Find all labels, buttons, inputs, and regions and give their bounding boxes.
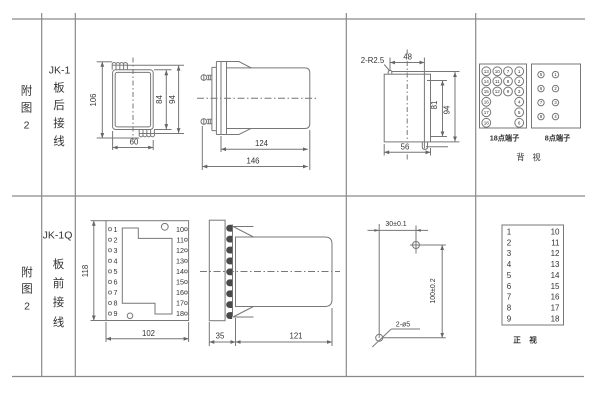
svg-text:图: 图: [21, 102, 33, 115]
svg-text:8: 8: [507, 303, 512, 312]
svg-text:2: 2: [507, 238, 512, 247]
svg-text:板: 板: [53, 257, 65, 271]
svg-text:18: 18: [176, 309, 184, 318]
svg-text:13: 13: [176, 256, 184, 265]
svg-text:后: 后: [53, 99, 65, 112]
svg-text:视: 视: [529, 335, 537, 345]
svg-text:13: 13: [484, 69, 490, 74]
svg-text:1: 1: [114, 225, 118, 234]
svg-text:背: 背: [516, 152, 524, 162]
svg-text:60: 60: [130, 138, 139, 147]
svg-text:JK-1Q: JK-1Q: [43, 230, 73, 242]
svg-text:正: 正: [513, 336, 521, 345]
svg-text:9: 9: [507, 89, 510, 94]
svg-text:图: 图: [21, 282, 33, 295]
svg-text:接: 接: [53, 296, 65, 309]
svg-text:板: 板: [53, 81, 65, 95]
svg-text:35: 35: [216, 332, 225, 341]
svg-text:1: 1: [554, 72, 557, 77]
svg-text:18点端子: 18点端子: [490, 133, 520, 142]
svg-text:81: 81: [430, 101, 439, 110]
svg-text:附: 附: [21, 265, 33, 279]
svg-text:11: 11: [495, 79, 500, 84]
svg-text:10: 10: [176, 225, 184, 234]
svg-text:3: 3: [114, 246, 118, 255]
svg-text:3: 3: [507, 249, 512, 258]
svg-text:1: 1: [518, 69, 521, 74]
svg-text:84: 84: [155, 95, 164, 104]
svg-text:2: 2: [554, 86, 557, 91]
svg-text:5: 5: [518, 110, 521, 115]
svg-text:前: 前: [53, 276, 65, 290]
svg-text:2: 2: [114, 235, 118, 244]
svg-text:15: 15: [176, 278, 184, 287]
svg-text:146: 146: [246, 157, 259, 166]
svg-text:3: 3: [554, 100, 557, 105]
svg-text:30±0.1: 30±0.1: [385, 221, 406, 228]
svg-text:视: 视: [532, 153, 540, 163]
svg-text:2-ø5: 2-ø5: [396, 322, 411, 329]
svg-text:附: 附: [21, 84, 33, 98]
svg-text:2-R2.5: 2-R2.5: [361, 56, 385, 65]
svg-text:2: 2: [518, 79, 521, 84]
svg-text:2: 2: [24, 300, 30, 312]
svg-text:9: 9: [114, 309, 118, 318]
svg-text:11: 11: [551, 238, 560, 247]
svg-text:12: 12: [495, 89, 501, 94]
svg-text:7: 7: [507, 69, 510, 74]
svg-text:4: 4: [114, 256, 118, 265]
svg-text:94: 94: [442, 105, 451, 114]
svg-text:线: 线: [53, 315, 65, 329]
svg-text:6: 6: [114, 278, 118, 287]
svg-text:12: 12: [551, 249, 560, 258]
svg-text:15: 15: [551, 282, 560, 291]
svg-text:94: 94: [168, 95, 177, 104]
svg-text:3: 3: [518, 89, 521, 94]
svg-text:11: 11: [177, 235, 184, 244]
svg-text:6: 6: [507, 282, 512, 291]
svg-text:12: 12: [176, 246, 184, 255]
svg-text:17: 17: [551, 303, 560, 312]
svg-text:线: 线: [53, 134, 65, 148]
svg-text:18: 18: [484, 120, 490, 125]
svg-text:14: 14: [484, 79, 490, 84]
svg-text:JK-1: JK-1: [49, 65, 71, 77]
svg-text:7: 7: [540, 100, 543, 105]
svg-text:10: 10: [551, 228, 560, 237]
svg-text:6: 6: [540, 86, 543, 91]
svg-text:102: 102: [142, 329, 155, 338]
svg-text:2: 2: [24, 120, 30, 132]
svg-text:13: 13: [551, 260, 560, 269]
svg-text:15: 15: [484, 89, 490, 94]
svg-text:124: 124: [255, 139, 269, 148]
svg-text:106: 106: [89, 93, 98, 106]
svg-text:5: 5: [507, 271, 512, 280]
svg-text:14: 14: [551, 271, 560, 280]
svg-text:4: 4: [518, 99, 521, 104]
svg-text:100±0.2: 100±0.2: [430, 278, 437, 303]
svg-text:4: 4: [507, 260, 512, 269]
svg-text:8点端子: 8点端子: [545, 133, 571, 142]
svg-text:16: 16: [484, 99, 490, 104]
svg-text:16: 16: [176, 288, 184, 297]
svg-text:16: 16: [551, 293, 560, 302]
svg-text:14: 14: [176, 267, 184, 276]
svg-text:9: 9: [507, 314, 512, 323]
svg-text:7: 7: [114, 288, 118, 297]
svg-text:5: 5: [114, 267, 118, 276]
svg-text:18: 18: [551, 314, 560, 323]
svg-text:4: 4: [554, 114, 557, 119]
svg-text:8: 8: [540, 114, 543, 119]
svg-text:8: 8: [114, 299, 118, 308]
svg-text:121: 121: [289, 332, 302, 341]
svg-text:1: 1: [507, 228, 512, 237]
svg-text:48: 48: [403, 53, 412, 62]
svg-text:118: 118: [81, 265, 90, 277]
svg-text:10: 10: [495, 69, 501, 74]
svg-text:17: 17: [484, 110, 490, 115]
svg-text:6: 6: [518, 120, 521, 125]
svg-text:5: 5: [540, 72, 543, 77]
svg-text:7: 7: [507, 293, 512, 302]
svg-text:17: 17: [176, 299, 184, 308]
svg-text:接: 接: [53, 117, 65, 130]
svg-text:8: 8: [507, 79, 510, 84]
svg-text:56: 56: [401, 143, 410, 152]
